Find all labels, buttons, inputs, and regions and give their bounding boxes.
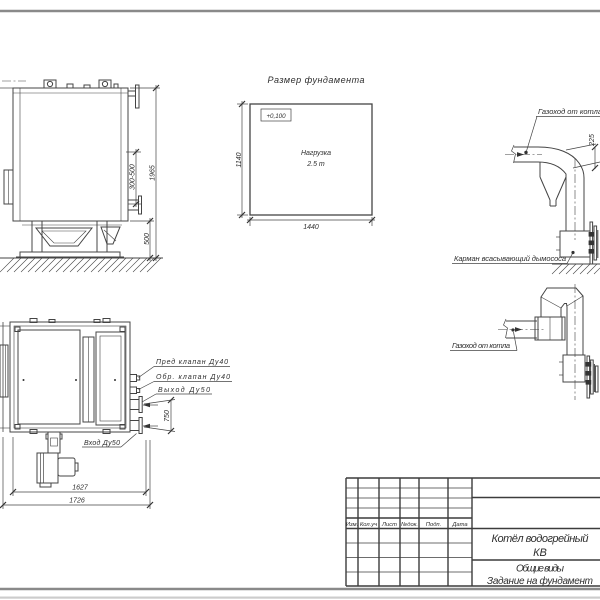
ground-hatch-right xyxy=(552,264,600,274)
flow-arrow xyxy=(517,152,524,157)
col-data: Дата xyxy=(451,522,468,528)
col-izm: Изм. xyxy=(346,522,358,528)
load-label-line1: Нагрузка xyxy=(301,150,331,157)
flue-lower-view: Газоход от котла xyxy=(450,284,598,400)
elbow-with-pocket xyxy=(538,147,584,240)
ground-hatch xyxy=(0,258,163,272)
foundation-plan: Размер фундамента +0,100 Нагрузка 2.5 т … xyxy=(236,75,375,231)
dim-pipe-spacing: 750 xyxy=(164,410,171,422)
dim-length-inner: 1627 xyxy=(72,485,89,492)
lifting-eyes xyxy=(44,80,118,88)
label-inlet: Вход Ду50 xyxy=(84,439,120,447)
boiler-side-view: 300-500 1965 500 xyxy=(0,80,163,272)
drawing-canvas: 300-500 1965 500 Размер фундамента +0,10… xyxy=(0,0,600,600)
engineering-drawing: 300-500 1965 500 Размер фундамента +0,10… xyxy=(0,0,600,600)
burner-blower xyxy=(37,432,78,487)
doc-subtitle-line2: Задание на фундамент xyxy=(487,575,593,587)
left-panel xyxy=(18,330,80,424)
flue-upper-view: Газоход от котла xyxy=(452,107,600,274)
lower-transition-box xyxy=(559,355,598,398)
label-check-valve: Обр. клапан Ду40 xyxy=(156,373,230,381)
front-smokebox xyxy=(0,345,8,397)
label-safety-valve: Пред клапан Ду40 xyxy=(156,358,228,366)
flow-arrow xyxy=(515,327,522,332)
flue-lower-duct-label: Газоход от котла xyxy=(452,341,510,350)
flue-box xyxy=(535,317,565,340)
col-list: Лист xyxy=(381,522,397,528)
col-podp: Подп. xyxy=(426,522,441,528)
dim-outlet-height: 300-500 xyxy=(130,164,137,190)
col-ndok: №док. xyxy=(401,522,418,528)
plan-body xyxy=(10,322,130,432)
dim-foundation-width: 1440 xyxy=(303,224,319,231)
page-bottom-shadow xyxy=(0,597,600,599)
doc-title-line2: КВ xyxy=(533,547,547,559)
boiler-plan-view: Пред клапан Ду40 Обр. клапан Ду40 Выход … xyxy=(0,319,232,510)
dim-length-outer: 1726 xyxy=(69,498,85,505)
right-panel xyxy=(96,332,125,425)
gooseneck-duct xyxy=(541,284,583,400)
elevation-mark: +0,100 xyxy=(266,113,286,120)
dim-foundation-depth: 1140 xyxy=(236,152,243,167)
dim-duct-225: 225 xyxy=(589,134,596,147)
foundation-title: Размер фундамента xyxy=(268,75,365,85)
break-symbol xyxy=(504,319,508,338)
flue-outlet-flange xyxy=(128,85,139,108)
doc-subtitle-line1: Общие виды xyxy=(516,563,565,575)
load-label-line2: 2.5 т xyxy=(306,161,325,168)
dim-base-height: 500 xyxy=(144,233,151,245)
col-koluch: Кол.уч xyxy=(360,522,377,528)
title-block: Изм. Кол.уч Лист №док. Подп. Дата Котёл … xyxy=(346,478,600,587)
flue-upper-duct-label: Газоход от котла xyxy=(538,107,600,116)
plan-dimensions xyxy=(0,397,175,509)
flue-upper-dimension xyxy=(566,144,600,171)
dim-total-height: 1965 xyxy=(150,165,157,181)
break-symbol xyxy=(512,145,516,163)
boiler-body xyxy=(13,88,128,221)
foundation-dimensions xyxy=(237,101,375,226)
label-outlet: Выход Ду50 xyxy=(158,386,210,394)
support-frame xyxy=(16,221,124,257)
doc-title-line1: Котёл водогрейный xyxy=(492,533,589,545)
flue-upper-pocket-label: Карман всасывающий дымососа xyxy=(454,254,566,263)
